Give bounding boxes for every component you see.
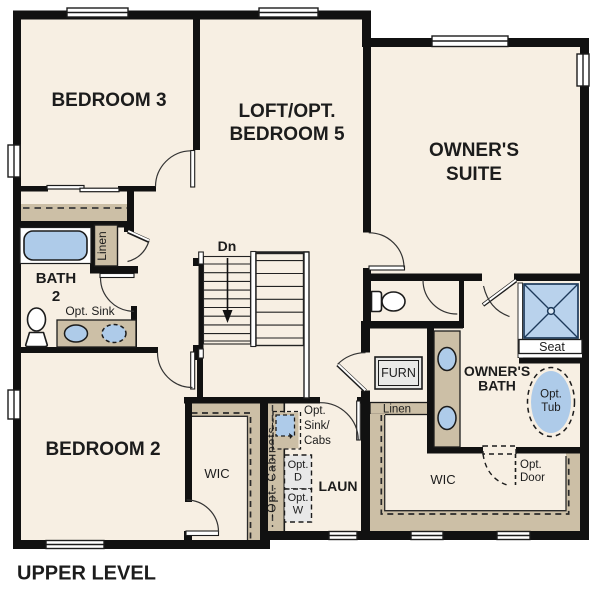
svg-text:Door: Door [520, 472, 545, 484]
svg-text:BATH: BATH [478, 378, 516, 394]
svg-text:Seat: Seat [539, 340, 565, 354]
svg-text:LAUN: LAUN [319, 478, 358, 494]
svg-text:SUITE: SUITE [446, 164, 502, 185]
svg-text:WIC: WIC [204, 466, 229, 481]
svg-text:Linen: Linen [383, 404, 411, 416]
svg-text:Sink/: Sink/ [304, 420, 330, 432]
svg-text:D: D [294, 472, 302, 484]
svg-text:W: W [293, 505, 304, 517]
svg-text:UPPER LEVEL: UPPER LEVEL [17, 563, 156, 585]
svg-text:LOFT/OPT.: LOFT/OPT. [238, 101, 335, 122]
svg-text:Opt.: Opt. [520, 459, 542, 471]
svg-text:Opt.: Opt. [540, 389, 562, 401]
svg-text:OWNER'S: OWNER'S [429, 140, 519, 161]
svg-text:BEDROOM 2: BEDROOM 2 [45, 439, 160, 460]
svg-text:BATH: BATH [36, 270, 77, 287]
svg-text:Opt. Sink: Opt. Sink [65, 304, 115, 318]
svg-text:WIC: WIC [430, 472, 455, 487]
svg-text:FURN: FURN [381, 366, 416, 380]
svg-text:Opt.: Opt. [304, 405, 326, 417]
svg-text:Dn: Dn [218, 238, 237, 254]
svg-text:Opt.: Opt. [288, 459, 309, 471]
svg-text:BEDROOM 3: BEDROOM 3 [51, 90, 166, 111]
svg-text:Opt.: Opt. [288, 492, 309, 504]
svg-text:Linen: Linen [95, 231, 109, 260]
svg-text:2: 2 [52, 288, 60, 305]
svg-text:BEDROOM 5: BEDROOM 5 [229, 124, 345, 145]
svg-text:Cabs: Cabs [304, 435, 331, 447]
svg-text:Tub: Tub [541, 402, 560, 414]
